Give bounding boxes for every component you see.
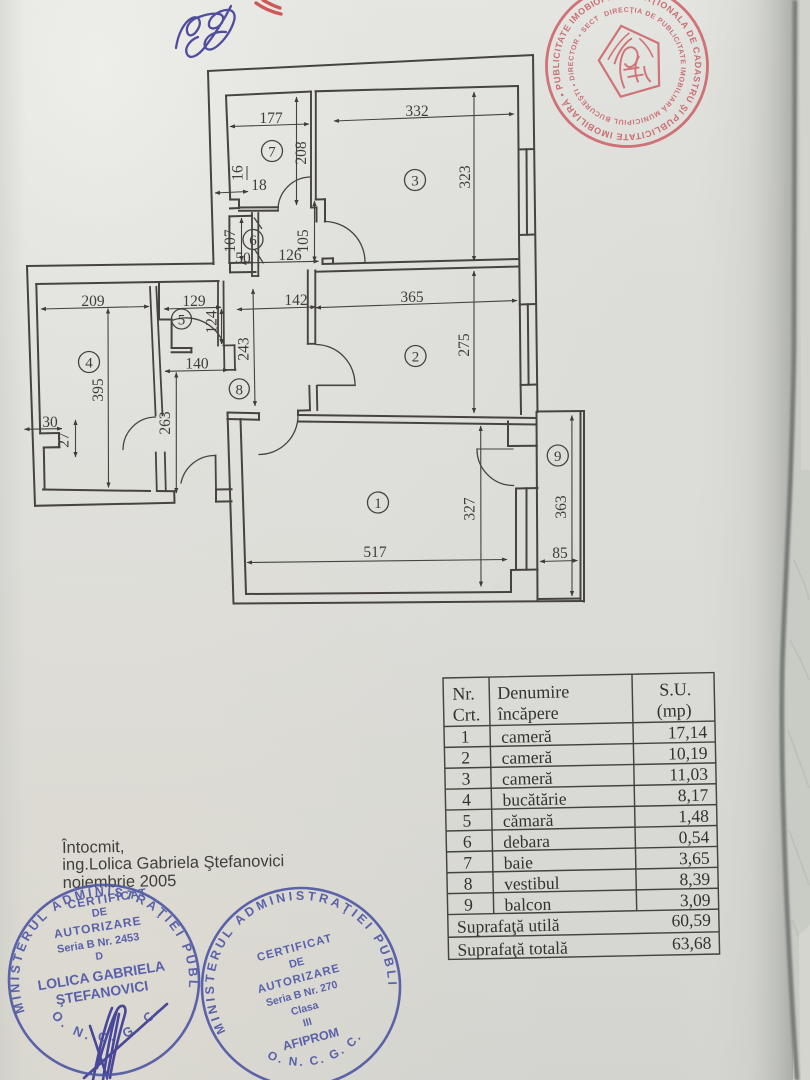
svg-text:9: 9 bbox=[464, 894, 473, 914]
svg-text:3: 3 bbox=[411, 174, 419, 190]
svg-text:209: 209 bbox=[81, 293, 105, 310]
svg-text:S.U.: S.U. bbox=[659, 679, 691, 700]
svg-text:142: 142 bbox=[284, 292, 307, 309]
svg-text:27: 27 bbox=[56, 432, 73, 448]
svg-text:105: 105 bbox=[295, 229, 312, 253]
svg-text:1: 1 bbox=[461, 726, 470, 746]
svg-text:11,03: 11,03 bbox=[669, 764, 708, 785]
svg-text:3,09: 3,09 bbox=[680, 890, 711, 911]
svg-text:124: 124 bbox=[204, 310, 221, 334]
svg-text:332: 332 bbox=[405, 103, 428, 120]
svg-text:5: 5 bbox=[178, 313, 186, 329]
svg-text:208: 208 bbox=[293, 141, 310, 165]
svg-text:încăpere: încăpere bbox=[497, 703, 559, 724]
svg-text:275: 275 bbox=[456, 333, 473, 357]
svg-text:140: 140 bbox=[185, 356, 209, 373]
svg-text:63,68: 63,68 bbox=[672, 933, 712, 954]
svg-text:8: 8 bbox=[464, 873, 473, 893]
svg-text:balcon: balcon bbox=[504, 894, 551, 915]
svg-text:365: 365 bbox=[400, 289, 424, 306]
svg-text:323: 323 bbox=[457, 165, 474, 189]
svg-text:Nr.: Nr. bbox=[452, 683, 475, 703]
svg-text:85: 85 bbox=[552, 545, 568, 562]
svg-text:cameră: cameră bbox=[501, 747, 552, 768]
svg-text:4: 4 bbox=[85, 356, 93, 372]
svg-text:7: 7 bbox=[463, 852, 472, 872]
svg-text:7: 7 bbox=[268, 145, 276, 161]
svg-text:1: 1 bbox=[374, 496, 382, 512]
svg-text:16: 16 bbox=[230, 165, 247, 181]
svg-text:6: 6 bbox=[249, 233, 257, 249]
svg-text:263: 263 bbox=[157, 411, 174, 435]
svg-text:50: 50 bbox=[235, 250, 251, 267]
svg-text:18: 18 bbox=[251, 177, 267, 194]
svg-text:debara: debara bbox=[503, 831, 550, 852]
svg-text:(mp): (mp) bbox=[656, 700, 691, 722]
svg-text:cameră: cameră bbox=[501, 726, 552, 747]
svg-text:129: 129 bbox=[182, 293, 206, 310]
svg-text:vestibul: vestibul bbox=[504, 873, 560, 894]
svg-text:10,19: 10,19 bbox=[668, 743, 708, 764]
svg-text:Întocmit,: Întocmit, bbox=[61, 837, 125, 857]
svg-text:cameră: cameră bbox=[502, 768, 553, 789]
svg-text:Suprafaţă utilă: Suprafaţă utilă bbox=[457, 915, 560, 937]
svg-text:cămară: cămară bbox=[503, 810, 554, 831]
svg-text:517: 517 bbox=[363, 544, 387, 561]
svg-text:6: 6 bbox=[463, 831, 472, 851]
svg-text:243: 243 bbox=[236, 337, 253, 361]
svg-text:30: 30 bbox=[42, 414, 58, 431]
svg-text:60,59: 60,59 bbox=[671, 910, 711, 931]
svg-text:0,54: 0,54 bbox=[678, 827, 709, 848]
svg-text:17,14: 17,14 bbox=[668, 722, 708, 743]
svg-text:1,48: 1,48 bbox=[678, 806, 709, 827]
svg-text:Crt.: Crt. bbox=[453, 704, 481, 725]
svg-text:2: 2 bbox=[412, 350, 420, 366]
svg-text:DE: DE bbox=[91, 906, 108, 920]
svg-text:9: 9 bbox=[554, 449, 562, 465]
svg-text:8,39: 8,39 bbox=[679, 869, 710, 890]
svg-text:395: 395 bbox=[90, 378, 107, 402]
svg-text:327: 327 bbox=[462, 497, 479, 521]
svg-text:177: 177 bbox=[259, 110, 283, 127]
svg-text:4: 4 bbox=[462, 789, 471, 809]
svg-text:8: 8 bbox=[236, 383, 244, 399]
svg-text:363: 363 bbox=[553, 495, 570, 519]
svg-text:2: 2 bbox=[461, 747, 470, 767]
svg-text:Denumire: Denumire bbox=[497, 681, 569, 702]
svg-text:5: 5 bbox=[462, 810, 471, 830]
svg-text:Suprafaţă totală: Suprafaţă totală bbox=[457, 938, 568, 960]
svg-text:3,65: 3,65 bbox=[679, 848, 710, 869]
svg-text:3: 3 bbox=[461, 768, 470, 788]
svg-text:bucătărie: bucătărie bbox=[502, 789, 567, 810]
svg-text:baie: baie bbox=[504, 852, 534, 873]
svg-text:8,17: 8,17 bbox=[678, 785, 709, 806]
